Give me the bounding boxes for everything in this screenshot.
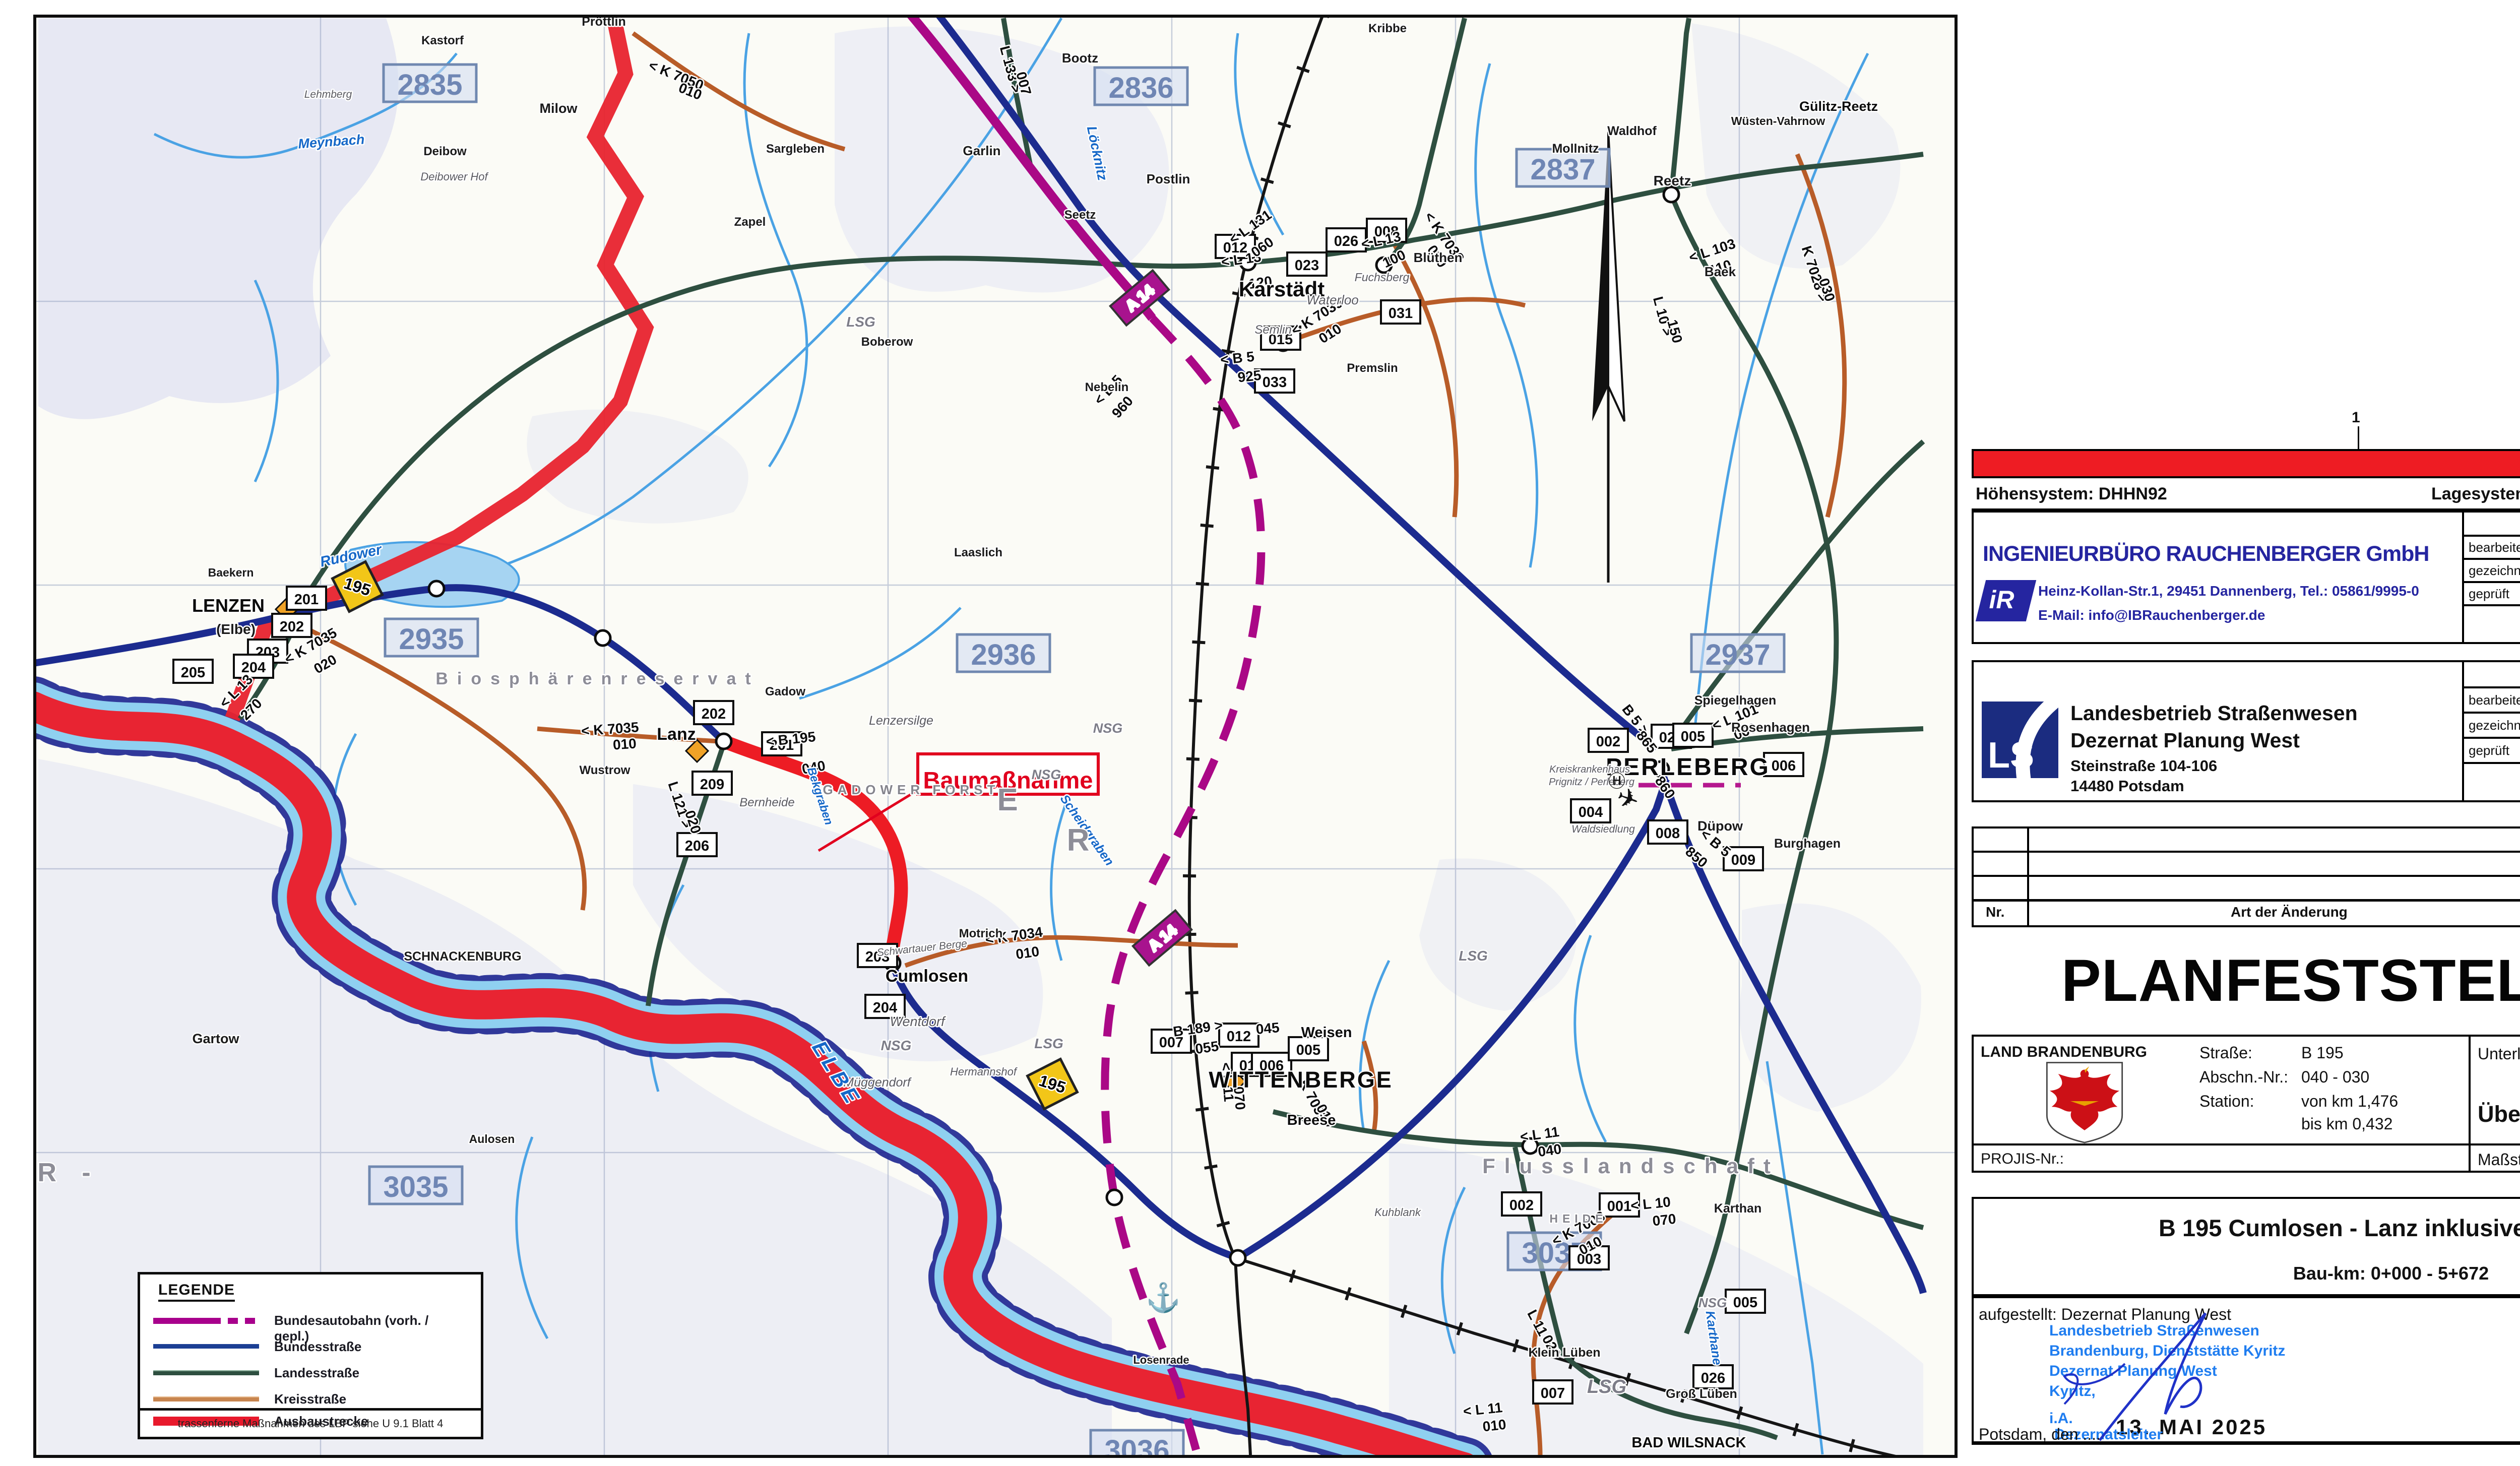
rev-col-art: Art der Änderung	[2231, 904, 2348, 920]
svg-text:002: 002	[1596, 734, 1620, 750]
svg-text:2936: 2936	[971, 639, 1036, 671]
map-symbol-icon: Ⓗ	[1608, 772, 1625, 791]
svg-text:026: 026	[1701, 1370, 1725, 1386]
road-number-label: 960	[1109, 393, 1136, 421]
svg-text:023: 023	[1295, 258, 1319, 274]
map-place-label: Deibower Hof	[420, 170, 489, 183]
svg-text:3035: 3035	[383, 1171, 448, 1203]
map-place-label: Burghagen	[1774, 837, 1841, 851]
map-place-label: Wustrow	[580, 763, 631, 777]
map-place-label: Wentdorf	[890, 1014, 946, 1029]
map-place-label: Mollnitz	[1552, 142, 1599, 156]
network-node-box: 206	[677, 833, 717, 856]
map-place-label: E	[997, 783, 1027, 817]
karte-type: Übersichtskarte	[2478, 1101, 2520, 1127]
map-place-label: Waterloo	[1306, 292, 1359, 307]
road-number-label: 010	[612, 735, 637, 752]
station-bis: bis km 0,432	[2301, 1115, 2392, 1133]
road-number-label: B 189 >	[1172, 1017, 1224, 1039]
map-place-label: WITTENBERGE	[1209, 1067, 1393, 1093]
svg-text:2836: 2836	[1108, 72, 1173, 104]
row-gezeichnet: gezeichnet	[2469, 718, 2520, 733]
coord-system-row: Höhensystem: DHHN92 Lagesystem: ETRS89 /…	[1972, 478, 2520, 512]
grid-number: 2836	[1095, 68, 1187, 105]
svg-text:031: 031	[1389, 305, 1413, 322]
authority-box: LS Landesbetrieb Straßenwesen Dezernat P…	[1972, 660, 2520, 802]
network-node-box: 005	[1673, 724, 1713, 747]
row-bearbeitet: bearbeitet	[2469, 540, 2520, 555]
contractor-email: E-Mail: info@IBRauchenberger.de	[2038, 607, 2265, 623]
station-label: Station:	[2199, 1092, 2254, 1111]
station-von: von km 1,476	[2301, 1092, 2398, 1111]
network-node-box: 007	[1533, 1380, 1572, 1404]
map-place-label: BAD WILSNACK	[1631, 1435, 1746, 1451]
overview-map: Baumaßnahme 2835283628372935293629373035…	[33, 15, 1958, 1458]
network-node-box: 202	[694, 701, 733, 724]
map-place-label: Waldsiedlung	[1571, 823, 1635, 835]
map-place-label: Hermannshof	[950, 1065, 1018, 1078]
network-node-box: 008	[1648, 820, 1687, 844]
network-node-box: 201	[287, 587, 326, 610]
svg-text:005: 005	[1733, 1295, 1757, 1311]
map-place-label: Blüthen	[1414, 250, 1463, 265]
svg-text:2937: 2937	[1705, 639, 1770, 671]
network-node-box: 031	[1381, 300, 1420, 324]
map-place-label: LSG	[1034, 1036, 1063, 1051]
map-place-label: Garlin	[963, 143, 1000, 158]
road-number-label: 010	[1015, 943, 1040, 962]
svg-text:202: 202	[280, 619, 304, 635]
grid-number: 2935	[385, 619, 478, 656]
strasse-value: B 195	[2301, 1044, 2344, 1062]
kreisstrasse-line-sample	[153, 1396, 259, 1401]
map-canvas: Baumaßnahme 2835283628372935293629373035…	[36, 18, 1955, 1455]
svg-text:209: 209	[700, 777, 724, 793]
map-place-label: Weisen	[1301, 1025, 1352, 1041]
network-node-box: 202	[272, 614, 311, 637]
svg-text:008: 008	[1656, 825, 1680, 842]
map-place-label: Wüsten-Vahrnow	[1731, 114, 1825, 128]
map-place-label: Gülitz-Reetz	[1799, 99, 1878, 114]
map-place-label: SCHNACKENBURG	[404, 949, 521, 964]
authority-line1: Landesbetrieb Straßenwesen	[2070, 702, 2358, 725]
map-place-label: LSG	[1587, 1376, 1626, 1397]
abschnitt-label: Abschn.-Nr.:	[2199, 1068, 2288, 1087]
lagesystem: Lagesystem: ETRS89 / Zone 33	[2431, 484, 2520, 504]
svg-text:002: 002	[1509, 1197, 1534, 1214]
abschnitt-value: 040 - 030	[2301, 1068, 2369, 1087]
legend-item-landesstrasse: Landesstraße	[153, 1368, 466, 1378]
map-place-label: Laaslich	[954, 546, 1002, 559]
network-node-box: 205	[173, 660, 213, 683]
row-geprueft: geprüft	[2469, 743, 2509, 758]
sheet-tick-mark	[2358, 426, 2359, 449]
approval-signature	[2034, 1308, 2246, 1443]
map-place-label: Biosphärenreservat	[435, 669, 760, 688]
grid-number: 3036	[1091, 1430, 1183, 1455]
network-node-box: 012	[1219, 1024, 1258, 1047]
map-place-label: Losenrade	[1133, 1354, 1189, 1366]
svg-text:026: 026	[1334, 233, 1358, 249]
landesstrasse-line-sample	[153, 1370, 259, 1375]
map-place-label: Breese	[1287, 1112, 1336, 1128]
map-place-label: Waldhof	[1607, 124, 1657, 138]
legend-label: Bundesstraße	[274, 1339, 361, 1355]
map-place-label: Nebelin	[1085, 380, 1129, 394]
road-number-label: 150	[1664, 318, 1685, 345]
map-place-label: LENZEN	[192, 595, 265, 616]
map-place-label: NSG	[1698, 1295, 1727, 1310]
svg-text:201: 201	[294, 592, 319, 608]
road-number-label: 055	[1194, 1038, 1220, 1057]
legend-item-bundesstrasse: Bundesstraße	[153, 1342, 466, 1352]
network-node-box: 002	[1589, 729, 1628, 752]
authority-line2: Dezernat Planung West	[2070, 729, 2300, 752]
network-node-box: 209	[692, 772, 732, 795]
network-node-box: 023	[1287, 252, 1327, 276]
legend-label: Kreisstraße	[274, 1391, 346, 1407]
road-number-label: 010	[1482, 1417, 1507, 1435]
contractor-logo: iR	[1976, 580, 2036, 621]
contractor-name: INGENIEURBÜRO RAUCHENBERGER GmbH	[1983, 542, 2429, 566]
network-node-box: 005	[1726, 1290, 1765, 1313]
bundesstrasse-line-sample	[153, 1344, 259, 1349]
map-place-label: R -	[37, 1158, 99, 1187]
grid-number: 3035	[369, 1167, 462, 1204]
map-place-label: Baek	[1705, 264, 1736, 279]
map-place-label: Bootz	[1062, 50, 1098, 66]
svg-text:202: 202	[702, 706, 726, 722]
grid-number: 2937	[1691, 634, 1784, 672]
map-place-label: Pröttlin	[582, 18, 626, 29]
map-place-label: Baekern	[208, 566, 254, 579]
svg-text:005: 005	[1681, 729, 1705, 745]
map-place-label: Boberow	[861, 335, 913, 349]
hoehensystem: Höhensystem: DHHN92	[1976, 484, 2167, 504]
map-place-label: Groß Lüben	[1666, 1387, 1737, 1401]
map-place-label: Premslin	[1347, 361, 1398, 375]
legend-note: trassenferne Maßnahmen des LBP siehe U 9…	[140, 1408, 481, 1437]
svg-text:2835: 2835	[397, 69, 462, 101]
grid-number: 2936	[957, 634, 1050, 672]
map-place-label: NSG	[1093, 721, 1123, 736]
svg-text:009: 009	[1731, 852, 1755, 868]
land-label: LAND BRANDENBURG	[1981, 1044, 2147, 1061]
road-number-label: 070	[1652, 1211, 1677, 1229]
scheme-title: B 195 Cumlosen - Lanz inklusive Radweg	[1974, 1214, 2520, 1242]
b195-shield: 195	[1019, 1051, 1085, 1117]
authority-line4: 14480 Potsdam	[2070, 777, 2184, 795]
map-place-label: Lehmberg	[304, 89, 352, 100]
svg-text:012: 012	[1227, 1029, 1251, 1045]
map-place-label: Zapel	[734, 215, 766, 229]
approval-box: aufgestellt: Dezernat Planung West Lande…	[1972, 1296, 2520, 1445]
map-place-label: Spiegelhagen	[1694, 693, 1777, 708]
project-box: LAND BRANDENBURG Straße: B 195 Abschn.-N…	[1972, 1035, 2520, 1173]
svg-text:004: 004	[1579, 804, 1603, 820]
svg-text:3036: 3036	[1104, 1434, 1169, 1455]
map-place-label: Bernheide	[739, 796, 794, 809]
map-place-label: (Elbe)	[216, 621, 256, 637]
rev-col-nr: Nr.	[1986, 904, 2004, 920]
legend-label: Landesstraße	[274, 1365, 359, 1381]
map-place-label: Fuchsberg	[1355, 271, 1410, 284]
network-node-box: 002	[1502, 1192, 1541, 1216]
revision-table: Nr. Art der Änderung Datum Zeichen	[1972, 826, 2520, 927]
autobahn-line-sample	[153, 1318, 259, 1324]
network-node-box: 204	[234, 655, 273, 678]
map-place-label: Kuhblank	[1374, 1206, 1421, 1219]
projis-label: PROJIS-Nr.:	[1981, 1151, 2064, 1168]
ls-logo: LS	[1982, 702, 2058, 778]
row-geprueft: geprüft	[2469, 586, 2509, 602]
map-place-label: Kastorf	[421, 34, 464, 47]
map-legend: LEGENDE Bundesautobahn (vorh. / gepl.) B…	[138, 1272, 483, 1439]
map-place-label: Cumlosen	[886, 967, 968, 986]
map-place-label: GADOWER FORST	[823, 782, 1000, 797]
map-place-label: Semlin	[1254, 323, 1291, 337]
map-place-label: Sargleben	[766, 142, 825, 156]
legend-title: LEGENDE	[158, 1282, 235, 1302]
map-place-label: HEIDE	[1549, 1212, 1607, 1225]
contractor-box: INGENIEURBÜRO RAUCHENBERGER GmbH iR Hein…	[1972, 511, 2520, 644]
svg-text:001: 001	[1607, 1198, 1631, 1215]
a14-shield: A 14	[1133, 910, 1191, 965]
svg-text:005: 005	[1296, 1042, 1320, 1058]
main-title: PLANFESTSTELLUNG	[2061, 946, 2520, 1015]
red-bar	[1972, 449, 2520, 478]
map-place-label: Flusslandschaft	[1482, 1154, 1780, 1178]
road-number-label: 925	[1237, 367, 1262, 386]
planfeststellung-sheet: { "title_block": { "sheet_tick": "1", "h…	[0, 0, 2520, 1466]
map-place-label: NSG	[881, 1038, 912, 1053]
road-number-label: < B 5	[1220, 349, 1255, 368]
map-place-label: NSG	[1032, 767, 1061, 782]
svg-text:007: 007	[1541, 1385, 1565, 1401]
scheme-baukm: Bau-km: 0+000 - 5+672	[1974, 1263, 2520, 1284]
contractor-address: Heinz-Kollan-Str.1, 29451 Dannenberg, Te…	[2038, 583, 2419, 599]
massstab-label: Maßstab:	[2478, 1151, 2520, 1169]
unterlage-label: Unterlage / Blatt-Nr.:	[2478, 1045, 2520, 1063]
map-place-label: Gartow	[192, 1031, 239, 1046]
map-symbol-icon: ⚓	[1146, 1282, 1181, 1314]
map-place-label: Deibow	[423, 145, 467, 158]
map-place-label: Klein Lüben	[1528, 1346, 1600, 1360]
svg-text:033: 033	[1263, 374, 1287, 391]
map-place-label: Seetz	[1064, 208, 1096, 222]
road-number-label: 020	[311, 652, 339, 677]
svg-text:006: 006	[1772, 758, 1796, 774]
svg-text:2935: 2935	[399, 623, 464, 656]
map-place-label: Karthan	[1714, 1201, 1761, 1216]
row-gezeichnet: gezeichnet	[2469, 563, 2520, 579]
road-number-label: 045	[1255, 1019, 1280, 1037]
legend-item-kreisstrasse: Kreisstraße	[153, 1394, 466, 1405]
map-place-label: Milow	[540, 101, 578, 116]
scheme-box: B 195 Cumlosen - Lanz inklusive Radweg B…	[1972, 1197, 2520, 1296]
map-place-label: Lanz	[657, 725, 696, 744]
map-place-label: Lenzersilge	[869, 714, 933, 728]
row-bearbeitet: bearbeitet	[2469, 692, 2520, 708]
map-place-label: Aulosen	[469, 1132, 515, 1145]
strasse-label: Straße:	[2199, 1044, 2252, 1062]
brandenburg-eagle	[2034, 1059, 2135, 1143]
network-node-box: 026	[1693, 1365, 1733, 1388]
grid-number: 2835	[384, 65, 476, 102]
map-place-label: Postlin	[1147, 171, 1190, 186]
map-place-label: LSG	[1459, 948, 1488, 964]
authority-line3: Steinstraße 104-106	[2070, 757, 2217, 775]
map-place-label: R	[1067, 823, 1099, 858]
svg-text:2837: 2837	[1530, 153, 1595, 186]
network-node-box: 004	[1571, 799, 1610, 822]
map-place-label: Kribbe	[1368, 22, 1407, 35]
svg-text:205: 205	[181, 665, 205, 681]
svg-text:206: 206	[685, 838, 709, 854]
map-place-label: Gadow	[765, 685, 805, 698]
sheet-tick: 1	[2352, 409, 2360, 426]
map-place-label: Düpow	[1697, 818, 1743, 834]
legend-item-autobahn: Bundesautobahn (vorh. / gepl.)	[153, 1316, 466, 1326]
map-place-label: Rosenhagen	[1731, 720, 1810, 735]
map-place-label: LSG	[846, 314, 875, 330]
map-place-label: Reetz	[1654, 173, 1691, 188]
